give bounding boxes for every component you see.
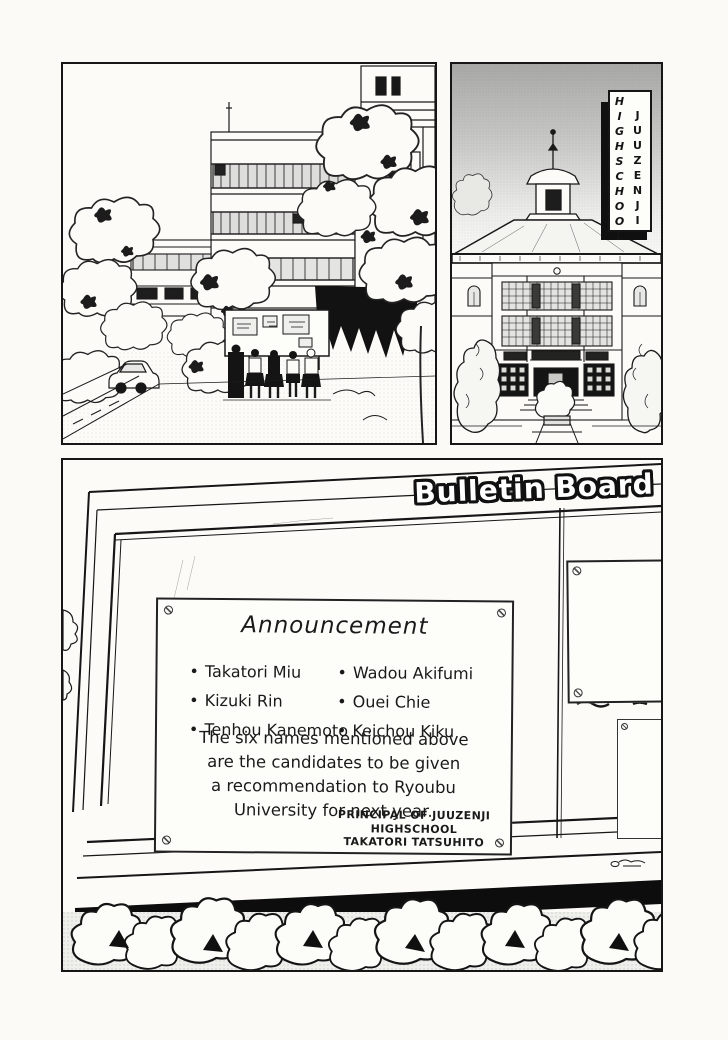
manga-page: { "sign": { "column_left": "HIGHSCHOOL",… — [0, 0, 728, 1040]
panel-bulletin-board: Bulletin Board Announcement •Takatori Mi… — [61, 458, 663, 972]
sign-text-juuzenji: JUUZENJI — [631, 109, 643, 229]
screw-icon — [495, 838, 504, 847]
panel-highschool-front: HIGHSCHOOL JUUZENJI — [450, 62, 663, 445]
left-edge-bush — [63, 610, 78, 700]
screw-icon — [621, 723, 628, 730]
students — [223, 345, 331, 401]
principal-signature: PRINCIPAL OF JUUZENJI HIGHSCHOOL TAKATOR… — [338, 808, 491, 850]
school-sign: HIGHSCHOOL JUUZENJI — [608, 90, 652, 232]
club-poster: 柔術部 — [566, 559, 663, 703]
screw-icon — [574, 688, 583, 697]
announcement-heading: Announcement — [158, 611, 512, 640]
candidate-name: •Wadou Akifumi — [337, 658, 473, 688]
candidate-name: •Takatori Miu — [189, 657, 348, 687]
mini-poster — [617, 719, 663, 839]
candidate-name: •Ouei Chie — [337, 687, 473, 717]
screw-icon — [572, 566, 581, 575]
sign-text-highschool: HIGHSCHOOL — [613, 95, 625, 245]
candidate-name: •Kizuki Rin — [189, 686, 348, 716]
school-exterior-drawing — [63, 64, 435, 443]
panel-school-exterior — [61, 62, 437, 445]
announcement-paper: Announcement •Takatori Miu •Kizuki Rin •… — [154, 597, 514, 855]
screw-icon — [162, 836, 171, 845]
